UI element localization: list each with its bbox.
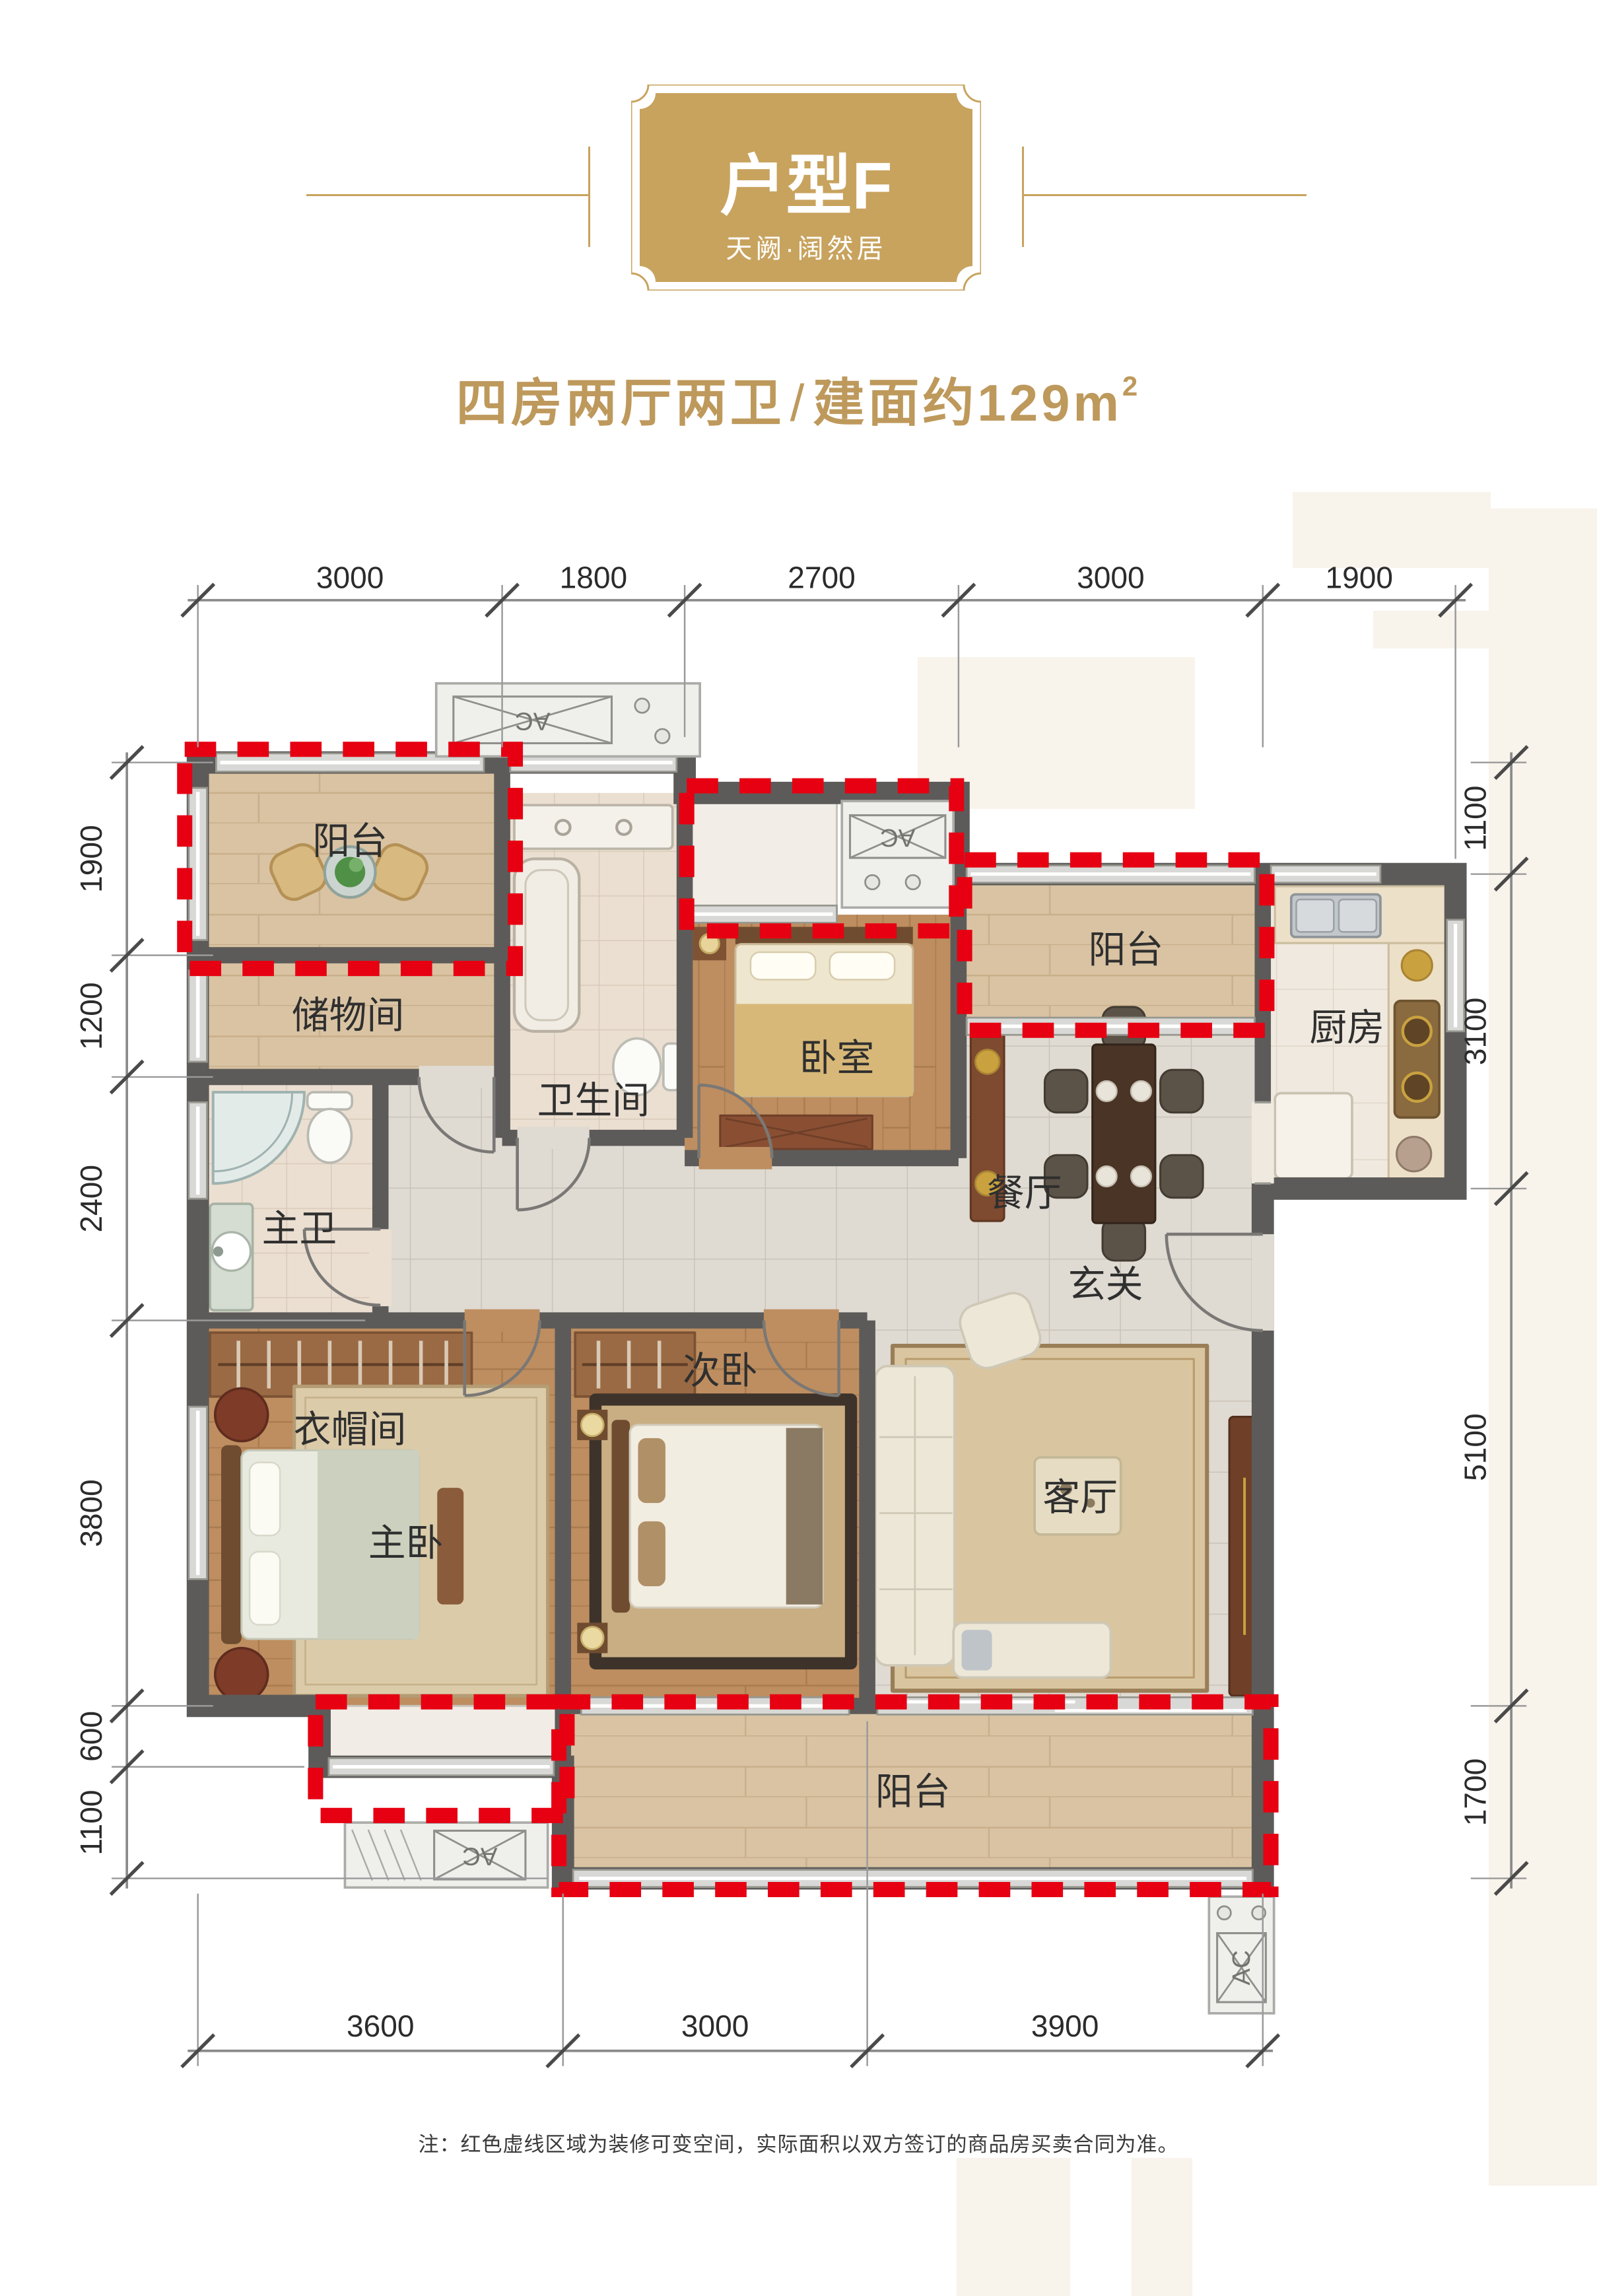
dim-left-6: 1100 <box>74 1790 108 1856</box>
dim-left-5: 600 <box>74 1711 108 1762</box>
disclaimer-note: 注：红色虚线区域为装修可变空间，实际面积以双方签订的商品房买卖合同为准。 <box>0 2128 1597 2157</box>
badge-right-line <box>1024 194 1307 196</box>
room-label-foyer: 玄关 <box>1068 1264 1143 1305</box>
dim-left-2: 1200 <box>74 983 108 1051</box>
dining-chair-icon <box>1103 1218 1145 1261</box>
dim-left-4: 3800 <box>74 1479 108 1547</box>
plate-icon <box>1131 1166 1151 1187</box>
toilet-tank-icon <box>308 1092 353 1109</box>
burner-icon <box>1403 1017 1431 1045</box>
room-label-second-bedroom: 次卧 <box>683 1350 758 1392</box>
fridge-icon <box>1275 1094 1352 1179</box>
bed-runner-icon <box>786 1428 823 1604</box>
room-label-balcony-top-right: 阳台 <box>1089 929 1164 971</box>
dim-right-4: 1700 <box>1458 1758 1493 1826</box>
pillow-icon <box>250 1463 280 1536</box>
room-label-dining: 餐厅 <box>987 1173 1062 1214</box>
pillow-icon <box>830 952 895 979</box>
unit-summary: 四房两厅两卫/建面约129m2 <box>0 362 1597 436</box>
dim-top-4: 3000 <box>1077 560 1145 594</box>
sink-basin-icon <box>1296 899 1334 932</box>
dim-left-3: 2400 <box>74 1165 108 1233</box>
unit-type-badge: 户型F 天阙·阔然居 <box>631 85 981 291</box>
badge-left-line <box>306 194 589 196</box>
room-label-master-bedroom: 主卧 <box>368 1523 444 1564</box>
room-label-bedroom-top: 卧室 <box>799 1038 875 1080</box>
wall-lamp-icon <box>975 1049 1000 1074</box>
background-pattern <box>1132 2158 1192 2296</box>
floorplan-page: { "colors":{"gold":"#C8A35E","red_dashed… <box>0 0 1597 2296</box>
dim-top-2: 1800 <box>560 560 628 594</box>
dim-bottom-3: 3900 <box>1031 2009 1099 2043</box>
dim-right-2: 3100 <box>1458 998 1493 1066</box>
ac-label: AC <box>1227 1950 1256 1985</box>
room-label-balcony-bottom: 阳台 <box>875 1771 951 1813</box>
room-label-balcony-top-left: 阳台 <box>312 821 388 862</box>
badge-subtitle: 天阙·阔然居 <box>726 234 886 263</box>
floor-plan: AC AC AC AC <box>66 549 1577 2112</box>
badge-title: 户型F <box>720 149 892 223</box>
pillow-icon <box>250 1552 280 1625</box>
side-table-icon <box>215 1389 268 1442</box>
background-pattern <box>957 2158 1070 2296</box>
ac-unit-bottom-right: AC <box>1209 1896 1274 2013</box>
room-label-bathroom: 卫生间 <box>537 1080 650 1122</box>
faucet-icon <box>213 1246 223 1256</box>
dim-right-1: 1100 <box>1458 786 1493 851</box>
pillow-icon <box>751 952 815 979</box>
side-table-icon <box>215 1648 268 1701</box>
pillow-icon <box>638 1521 665 1586</box>
summary-area: 建面约129m <box>813 374 1122 432</box>
dim-top-5: 1900 <box>1325 560 1393 594</box>
summary-divider: / <box>785 374 813 432</box>
dim-right-3: 5100 <box>1458 1413 1493 1481</box>
bowl-icon <box>1402 950 1432 981</box>
ac-label: AC <box>515 707 550 735</box>
summary-rooms: 四房两厅两卫 <box>456 374 785 432</box>
sink-basin-icon <box>1339 899 1376 932</box>
dim-bottom-1: 3600 <box>347 2009 415 2043</box>
pillow-icon <box>638 1438 665 1503</box>
dining-table-icon <box>1093 1045 1155 1223</box>
summary-area-sup: 2 <box>1122 370 1141 401</box>
daybed-pillow-icon <box>962 1630 992 1670</box>
dining-chair-icon <box>1044 1070 1087 1113</box>
room-label-living: 客厅 <box>1042 1477 1118 1519</box>
toilet-icon <box>308 1109 351 1162</box>
ac-label: AC <box>880 823 915 852</box>
plate-icon <box>1131 1081 1151 1101</box>
bedroom-bay-sill <box>690 793 837 915</box>
burner-icon <box>1403 1073 1431 1101</box>
ac-label: AC <box>462 1842 497 1870</box>
dim-bottom-2: 3000 <box>681 2009 749 2043</box>
room-label-master-bath: 主卫 <box>262 1208 337 1250</box>
bath-vanity-icon <box>514 805 673 849</box>
plate-icon <box>1097 1166 1117 1187</box>
bed-headboard-icon <box>221 1445 242 1644</box>
ac-unit-bedroom: AC <box>842 801 953 907</box>
dining-chair-icon <box>1161 1070 1204 1113</box>
lamp-icon <box>581 1414 603 1436</box>
dim-top-3: 2700 <box>788 560 856 594</box>
plate-icon <box>1097 1081 1117 1101</box>
room-label-storage: 储物间 <box>292 995 404 1037</box>
dim-left-1: 1900 <box>74 825 108 893</box>
lamp-icon <box>581 1627 603 1650</box>
dining-chair-icon <box>1161 1155 1204 1198</box>
room-label-cloakroom: 衣帽间 <box>294 1409 406 1451</box>
bed-headboard-icon <box>611 1420 630 1613</box>
badge-right-tick <box>1022 147 1024 247</box>
bathtub-icon <box>514 859 579 1031</box>
room-label-kitchen: 厨房 <box>1309 1008 1384 1049</box>
pot-icon <box>1397 1137 1431 1171</box>
badge-left-tick <box>588 147 590 247</box>
dim-top-1: 3000 <box>316 560 384 594</box>
